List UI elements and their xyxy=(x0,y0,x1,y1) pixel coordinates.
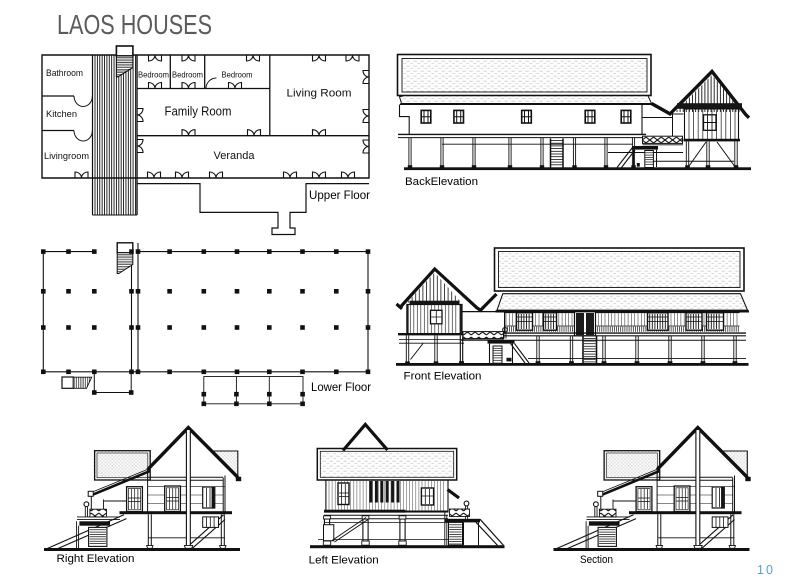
svg-text:Right Elevation: Right Elevation xyxy=(57,553,135,565)
svg-text:Left Elevation: Left Elevation xyxy=(309,555,379,567)
svg-text:Bedroom: Bedroom xyxy=(138,70,169,80)
svg-text:Lower Floor: Lower Floor xyxy=(311,381,371,394)
svg-text:Bathroom: Bathroom xyxy=(46,68,83,78)
svg-text:Upper Floor: Upper Floor xyxy=(309,189,370,202)
svg-text:Veranda: Veranda xyxy=(214,150,256,162)
svg-text:Livingroom: Livingroom xyxy=(44,151,89,161)
svg-text:10: 10 xyxy=(757,563,775,577)
svg-text:LAOS HOUSES: LAOS HOUSES xyxy=(57,9,212,40)
svg-text:Section: Section xyxy=(580,554,613,566)
svg-text:Front Elevation: Front Elevation xyxy=(404,371,482,383)
svg-text:Family Room: Family Room xyxy=(165,105,232,119)
svg-text:Kitchen: Kitchen xyxy=(46,109,77,119)
svg-text:Living Room: Living Room xyxy=(287,88,352,100)
svg-text:Bedroom: Bedroom xyxy=(222,70,253,80)
svg-text:BackElevation: BackElevation xyxy=(405,176,478,188)
svg-text:Bedroom: Bedroom xyxy=(172,70,203,80)
